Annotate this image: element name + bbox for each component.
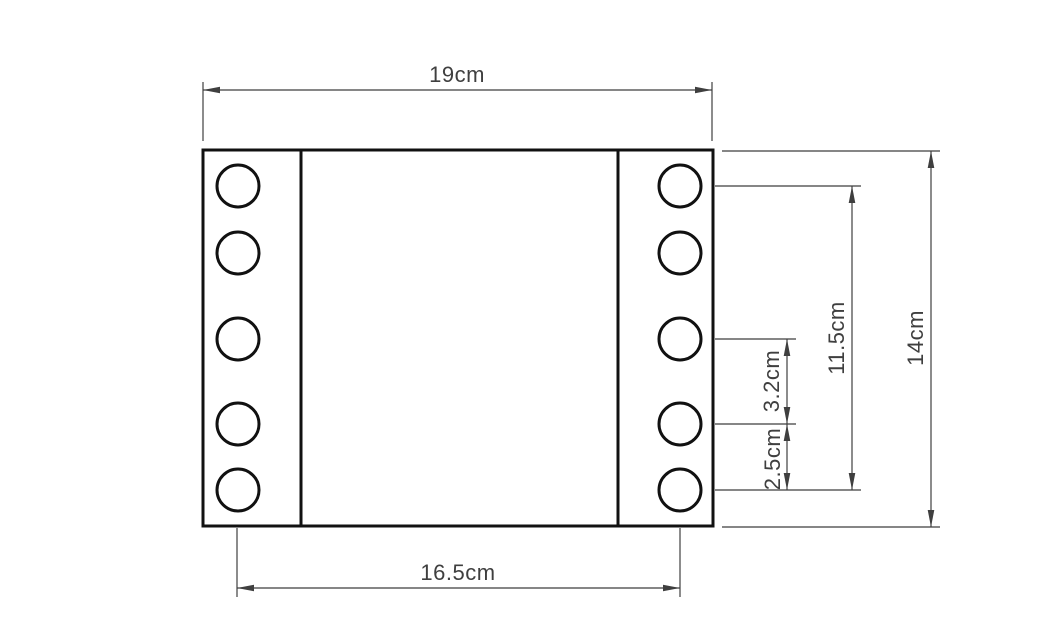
hole — [217, 318, 259, 360]
hole — [217, 403, 259, 445]
holes-left-column — [217, 165, 259, 511]
dim-label-overall-width: 19cm — [429, 62, 485, 87]
dim-hole-span-width: 16.5cm — [237, 528, 680, 597]
dim-overall-width: 19cm — [203, 62, 712, 141]
dim-hole-gap-middle: 3.2cm — [715, 339, 796, 424]
dim-label-hole-gap-middle: 3.2cm — [759, 350, 784, 412]
hole — [659, 165, 701, 207]
arrowhead-right-icon — [663, 585, 680, 592]
hole — [659, 403, 701, 445]
drawing-canvas: 19cm 16.5cm 14cm 11.5cm 3.2cm — [0, 0, 1037, 634]
dim-hole-gap-end: 2.5cm — [760, 424, 790, 490]
hole — [217, 165, 259, 207]
hole — [659, 318, 701, 360]
dim-label-hole-gap-end: 2.5cm — [760, 428, 785, 490]
dim-label-hole-span-height: 11.5cm — [824, 301, 849, 375]
arrowhead-right-icon — [695, 87, 712, 94]
hole — [659, 469, 701, 511]
dim-label-overall-height: 14cm — [903, 310, 928, 366]
arrowhead-down-icon — [784, 407, 791, 424]
holes-right-column — [659, 165, 701, 511]
arrowhead-up-icon — [849, 186, 856, 203]
arrowhead-up-icon — [928, 151, 935, 168]
plate — [203, 150, 713, 526]
hole — [217, 469, 259, 511]
dim-label-hole-span-width: 16.5cm — [420, 560, 495, 585]
dim-hole-span-height: 11.5cm — [715, 186, 861, 490]
hole — [659, 232, 701, 274]
technical-drawing: 19cm 16.5cm 14cm 11.5cm 3.2cm — [0, 0, 1037, 634]
arrowhead-left-icon — [237, 585, 254, 592]
arrowhead-down-icon — [849, 473, 856, 490]
arrowhead-up-icon — [784, 339, 791, 356]
arrowhead-left-icon — [203, 87, 220, 94]
plate-outline — [203, 150, 713, 526]
arrowhead-down-icon — [928, 510, 935, 527]
hole — [217, 232, 259, 274]
